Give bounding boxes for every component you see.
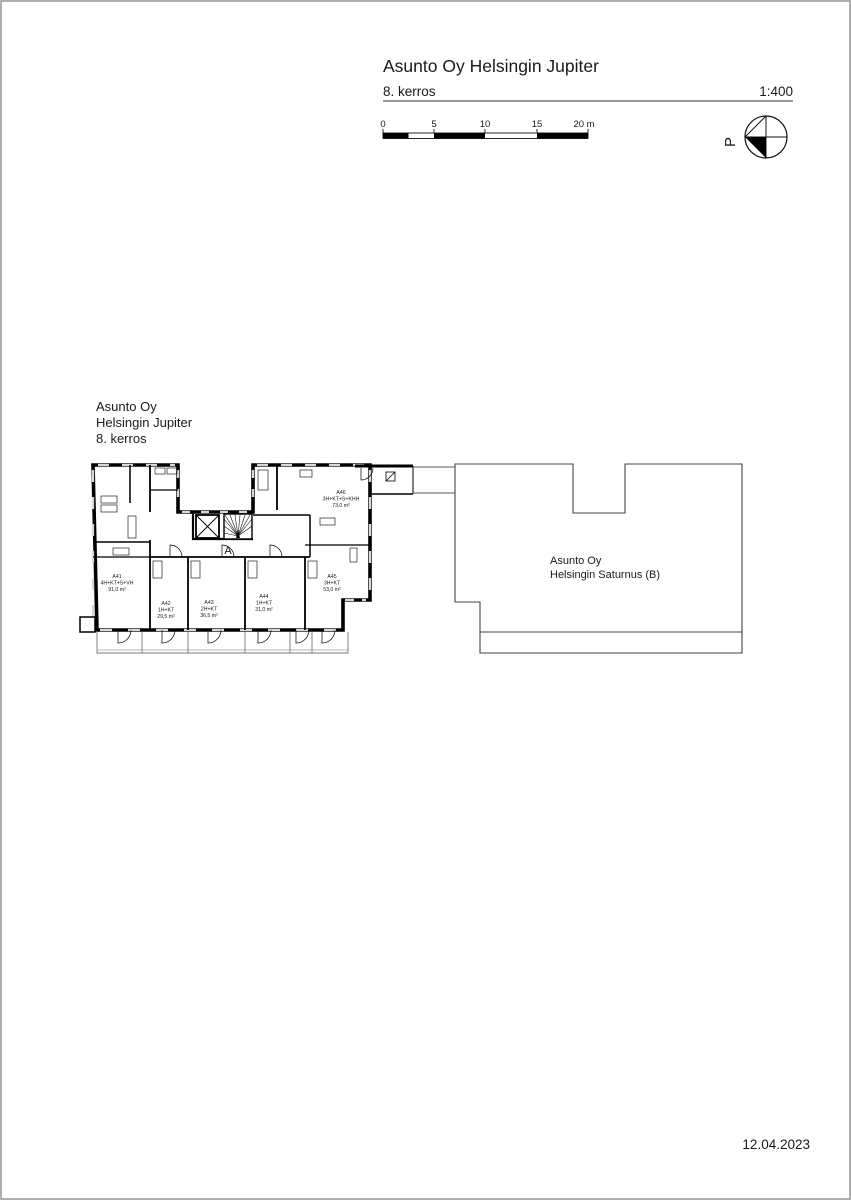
sheet-date: 12.04.2023	[742, 1137, 810, 1152]
stair-core: A	[193, 512, 253, 557]
plan-caption-line3: 8. kerros	[96, 431, 147, 446]
sheet-canvas: Asunto Oy Helsingin Jupiter 8. kerros 1:…	[0, 0, 851, 1200]
apartment-area: 31,0 m²	[255, 607, 273, 613]
scale-bar: 0 5 10 15 20 m	[380, 119, 594, 139]
apartment-type: 1H+KT	[158, 608, 175, 614]
scale-label: 1:400	[759, 84, 793, 99]
apartment-area: 73,0 m²	[332, 503, 350, 509]
apartment-id: A46	[336, 490, 345, 496]
scale-tick-label-20: 20 m	[573, 119, 594, 130]
apartment-label-a42: A42 1H+KT 29,5 m²	[157, 601, 175, 620]
apartment-label-a46: A46 3H+KT+S+KHH 73,0 m²	[323, 490, 360, 509]
neighbor-label-line1: Asunto Oy	[550, 555, 602, 567]
north-letter: P	[722, 137, 739, 147]
title-block: Asunto Oy Helsingin Jupiter 8. kerros 1:…	[383, 56, 793, 101]
plan-caption-line1: Asunto Oy	[96, 399, 157, 414]
apartment-type: 1H+KT	[256, 601, 273, 607]
plan-caption: Asunto Oy Helsingin Jupiter 8. kerros	[96, 399, 193, 446]
apartment-type: 2H+KT	[201, 607, 218, 613]
north-arrow-icon	[745, 116, 787, 158]
apartment-label-a43: A43 2H+KT 36,5 m²	[200, 600, 218, 619]
apartment-label-a45: A45 3H+KT 53,0 m²	[323, 574, 341, 593]
apartment-id: A45	[327, 574, 336, 580]
apartment-id: A43	[204, 600, 213, 606]
floor-plan-jupiter: A	[80, 465, 413, 653]
north-compass: P	[722, 116, 787, 158]
connector	[413, 467, 455, 493]
page-border	[1, 1, 850, 1199]
apartment-area: 36,5 m²	[200, 613, 218, 619]
apartment-id: A41	[112, 574, 121, 580]
apartment-label-a44: A44 1H+KT 31,0 m²	[255, 594, 273, 613]
apartment-label-a41: A41 4H+KT+S+VH 91,0 m²	[100, 574, 133, 593]
neighbor-label-line2: Helsingin Saturnus (B)	[550, 569, 660, 581]
scale-tick-label-10: 10	[480, 119, 491, 130]
apartment-type: 4H+KT+S+VH	[100, 581, 133, 587]
floor-label: 8. kerros	[383, 84, 436, 99]
scale-tick-label-0: 0	[380, 119, 385, 130]
apartment-area: 91,0 m²	[108, 587, 126, 593]
neighbor-building: Asunto Oy Helsingin Saturnus (B)	[455, 464, 742, 653]
drawing-sheet: Asunto Oy Helsingin Jupiter 8. kerros 1:…	[0, 0, 851, 1200]
balconies	[97, 632, 348, 653]
apartment-area: 29,5 m²	[157, 614, 175, 620]
scale-tick-label-5: 5	[431, 119, 436, 130]
sheet-title: Asunto Oy Helsingin Jupiter	[383, 56, 599, 76]
entrance-corridor	[355, 466, 413, 494]
apartment-area: 53,0 m²	[323, 587, 341, 593]
apartment-id: A44	[259, 594, 268, 600]
apartment-id: A42	[161, 601, 170, 607]
scale-tick-label-15: 15	[532, 119, 543, 130]
exterior-box	[80, 617, 95, 632]
apartment-type: 3H+KT	[324, 581, 341, 587]
plan-caption-line2: Helsingin Jupiter	[96, 415, 193, 430]
apartment-type: 3H+KT+S+KHH	[323, 497, 360, 503]
